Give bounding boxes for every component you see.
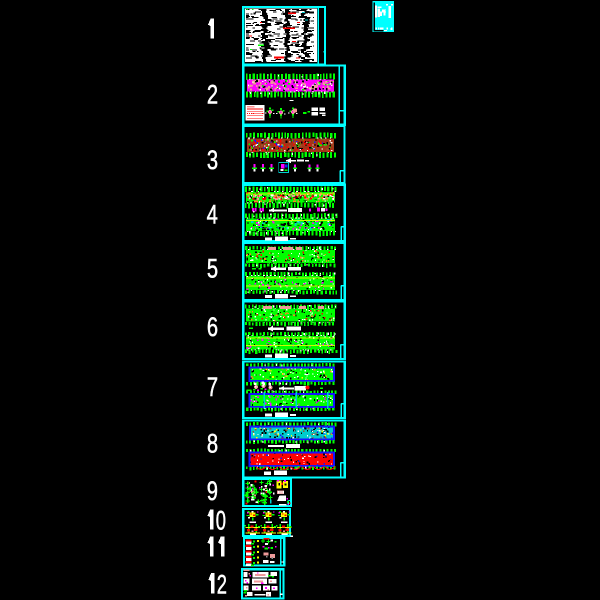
svg-text:8: 8 <box>207 429 218 459</box>
svg-text:3: 3 <box>207 145 218 175</box>
svg-text:7: 7 <box>207 372 218 402</box>
svg-text:0: 0 <box>216 506 226 536</box>
svg-text:6: 6 <box>207 312 218 342</box>
svg-text:5: 5 <box>207 254 218 284</box>
svg-text:2: 2 <box>207 80 218 110</box>
svg-text:4: 4 <box>207 199 218 229</box>
svg-text:2: 2 <box>217 569 227 599</box>
svg-text:9: 9 <box>207 476 218 506</box>
